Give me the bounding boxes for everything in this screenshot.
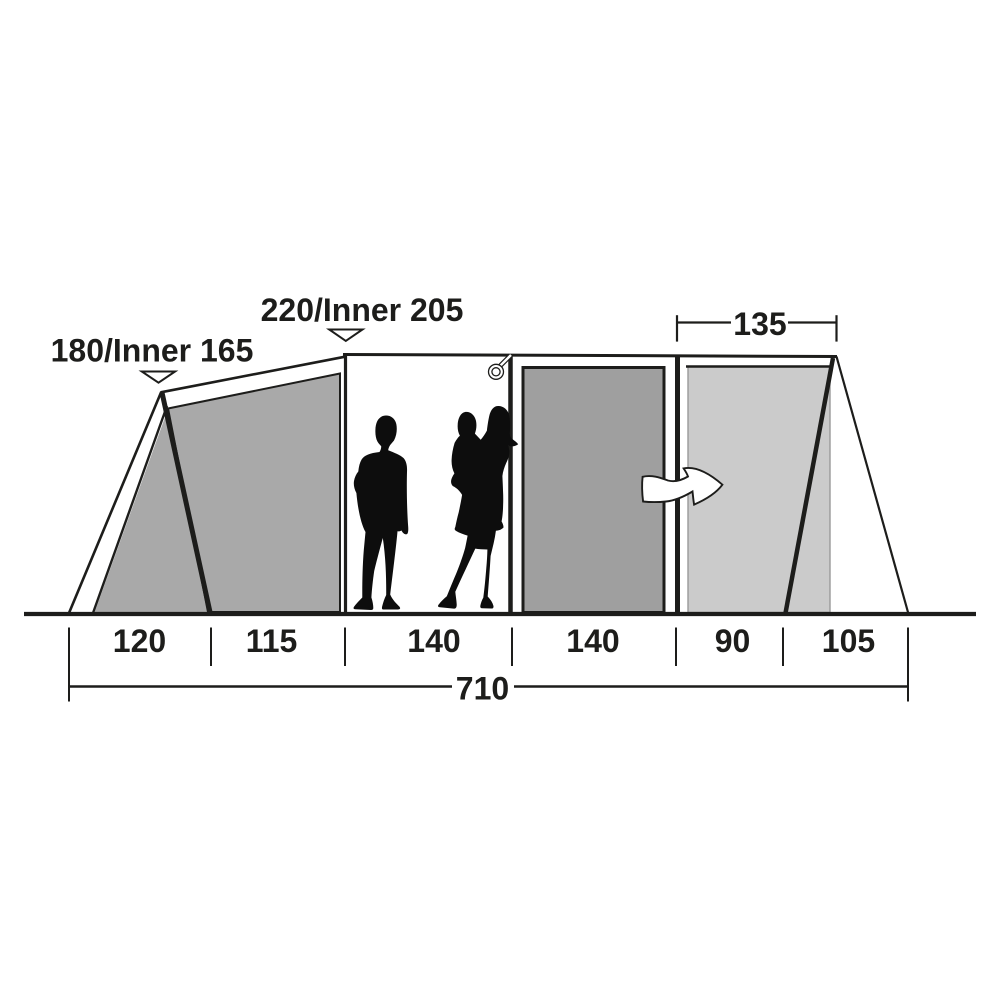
svg-text:710: 710: [456, 671, 509, 707]
svg-text:135: 135: [733, 306, 786, 342]
svg-text:140: 140: [407, 623, 460, 659]
svg-text:140: 140: [566, 623, 619, 659]
svg-text:220/Inner 205: 220/Inner 205: [261, 292, 464, 328]
svg-text:120: 120: [113, 623, 166, 659]
svg-text:115: 115: [246, 623, 298, 659]
svg-text:180/Inner 165: 180/Inner 165: [51, 333, 254, 369]
svg-text:105: 105: [822, 623, 875, 659]
svg-text:90: 90: [715, 623, 751, 659]
